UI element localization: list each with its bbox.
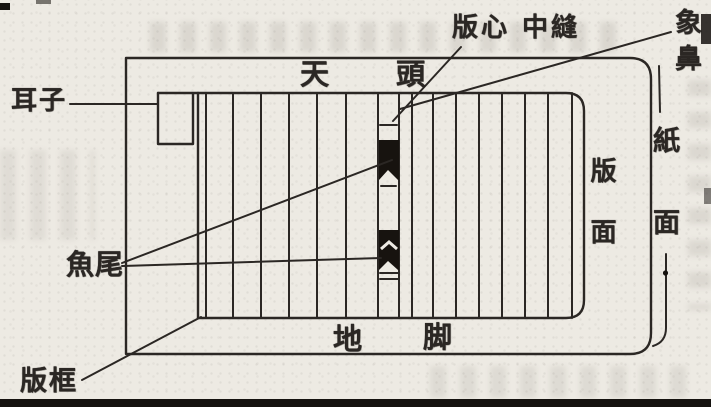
scanned-diagram-page: 耳子 魚尾 版框 版心 中縫 象鼻 紙面 版面 天 頭 地 脚 xyxy=(0,0,711,407)
label-fish-tail: 魚尾 xyxy=(66,251,124,279)
label-paper-surface: 紙面 xyxy=(650,126,677,290)
label-elephant-nose: 象鼻 xyxy=(672,8,699,80)
label-block-surface: 版面 xyxy=(588,157,614,279)
label-top-margin-char1: 天 xyxy=(300,60,329,89)
label-ear: 耳子 xyxy=(11,88,67,114)
ear-box xyxy=(158,93,193,144)
label-bottom-margin-char1: 地 xyxy=(333,325,362,354)
frame-border xyxy=(158,93,584,318)
column-lines xyxy=(233,93,548,318)
label-frame: 版框 xyxy=(20,368,78,395)
label-center-strip: 版心 中縫 xyxy=(452,15,580,41)
fish-tail-marks xyxy=(379,125,399,279)
label-bottom-margin-char2: 脚 xyxy=(423,323,452,352)
label-top-margin-char2: 頭 xyxy=(396,60,425,89)
leader-lines xyxy=(70,32,671,380)
